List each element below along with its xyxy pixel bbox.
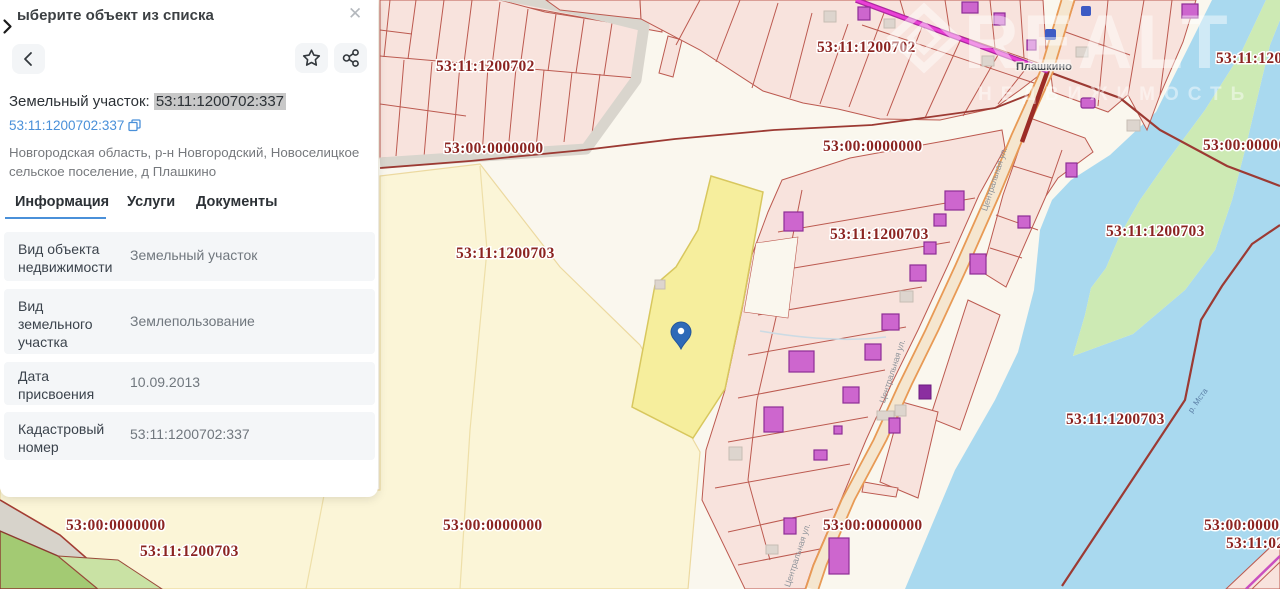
svg-text:53:00:0000000: 53:00:0000000 [823, 138, 922, 155]
svg-text:53:11:0200000: 53:11:0200000 [1226, 535, 1280, 552]
svg-text:Плашкино: Плашкино [1016, 61, 1072, 73]
svg-text:53:11:1200703: 53:11:1200703 [456, 245, 555, 262]
svg-text:53:11:1200703: 53:11:1200703 [140, 543, 239, 560]
svg-text:53:00:0000000: 53:00:0000000 [444, 140, 543, 157]
svg-text:53:11:1200703: 53:11:1200703 [1066, 411, 1165, 428]
svg-text:53:11:1200703: 53:11:1200703 [1106, 223, 1205, 240]
svg-text:53:00:0000000: 53:00:0000000 [1204, 517, 1280, 534]
svg-text:53:00:0000000: 53:00:0000000 [66, 517, 165, 534]
svg-text:53:11:1200702: 53:11:1200702 [1216, 50, 1280, 67]
svg-text:53:00:0000000: 53:00:0000000 [1203, 137, 1280, 154]
svg-text:53:11:1200702: 53:11:1200702 [436, 58, 535, 75]
svg-text:53:00:0000000: 53:00:0000000 [823, 517, 922, 534]
svg-text:53:11:1200703: 53:11:1200703 [830, 226, 929, 243]
svg-text:53:11:1200702: 53:11:1200702 [817, 39, 916, 56]
svg-text:53:00:0000000: 53:00:0000000 [443, 517, 542, 534]
